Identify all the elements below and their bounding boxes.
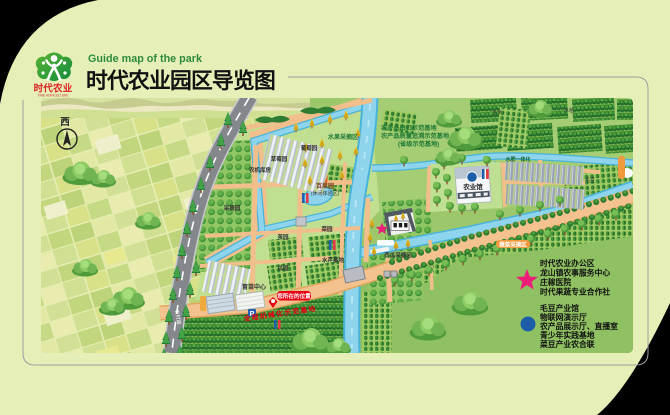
svg-text:龙山镇农事服务中心: 龙山镇农事服务中心 [539, 268, 610, 278]
svg-text:农产品质量追溯示范基地: 农产品质量追溯示范基地 [380, 132, 450, 140]
svg-text:您所在的位置: 您所在的位置 [277, 292, 311, 300]
svg-text:毛豆产业馆: 毛豆产业馆 [540, 303, 579, 313]
svg-text:玉米: 玉米 [492, 109, 502, 116]
svg-text:毛豆: 毛豆 [585, 177, 595, 184]
svg-text:时代农业办公区: 时代农业办公区 [540, 258, 595, 268]
svg-text:草莓园: 草莓园 [271, 155, 288, 163]
svg-text:瓜园: 瓜园 [277, 264, 289, 272]
svg-text:菜园: 菜园 [320, 225, 333, 233]
svg-text:TIME AGRICULTURE: TIME AGRICULTURE [38, 94, 69, 98]
svg-text:西瓜采摘区: 西瓜采摘区 [384, 251, 412, 259]
svg-text:蔬菜采摘区: 蔬菜采摘区 [499, 241, 527, 249]
svg-text:水芹基地: 水芹基地 [322, 256, 345, 264]
svg-text:(省级示范基地): (省级示范基地) [398, 140, 439, 148]
svg-text:葡萄园: 葡萄园 [300, 144, 318, 152]
svg-text:物联网演示厅: 物联网演示厅 [540, 312, 587, 322]
svg-text:农产品展示厅、直播室: 农产品展示厅、直播室 [539, 321, 618, 331]
svg-text:菜豆产业农合联: 菜豆产业农合联 [539, 339, 595, 349]
svg-text:水稻: 水稻 [564, 107, 574, 114]
svg-text:水果采摘区: 水果采摘区 [328, 133, 358, 141]
svg-text:水肥一体化: 水肥一体化 [504, 156, 530, 163]
svg-text:时代果蔬专业合作社: 时代果蔬专业合作社 [540, 287, 610, 297]
svg-text:农业馆: 农业馆 [462, 182, 483, 191]
svg-text:时代农业园区导览图: 时代农业园区导览图 [86, 68, 275, 93]
svg-text:农产品出口示范基地: 农产品出口示范基地 [380, 124, 437, 132]
svg-text:采摘园: 采摘园 [223, 204, 241, 212]
svg-text:茶园: 茶园 [276, 233, 289, 241]
svg-text:庄稼医院: 庄稼医院 [540, 277, 571, 287]
svg-text:育苗中心: 育苗中心 [242, 283, 266, 291]
svg-text:百果园: 百果园 [316, 182, 334, 190]
svg-text:青少年实践基地: 青少年实践基地 [540, 330, 595, 340]
svg-text:Guide map of the park: Guide map of the park [88, 53, 203, 65]
svg-text:农机库房: 农机库房 [248, 166, 272, 174]
svg-text:西: 西 [60, 117, 70, 128]
svg-text:(休闲体验区): (休闲体验区) [311, 190, 340, 197]
